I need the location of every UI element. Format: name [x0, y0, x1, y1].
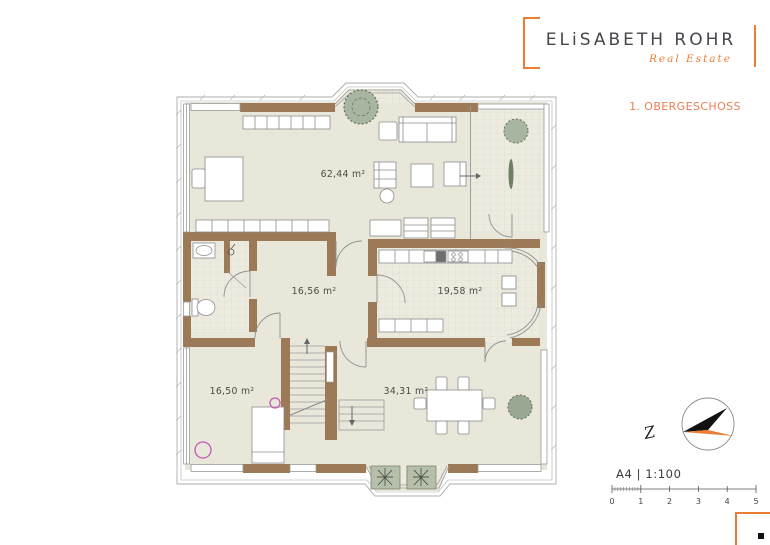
compass-north-label: Z	[642, 422, 657, 443]
plan-position-box	[735, 512, 770, 545]
brand-logo: ELiSABETH ROHR Real Estate	[523, 17, 756, 71]
tick-0: 0	[609, 497, 614, 506]
format-scale-label: A4 | 1:100	[616, 467, 682, 481]
tick-3: 3	[696, 497, 701, 506]
brand-name: ELiSABETH ROHR	[545, 30, 737, 50]
page: ELiSABETH ROHR Real Estate 1. OBERGESCHO…	[0, 0, 770, 545]
scale-tick-labels: 0 1 2 3 4 5	[609, 497, 758, 506]
floor-base	[185, 89, 548, 491]
compass-needle-black	[683, 408, 727, 432]
label-hall: 16,56 m²	[292, 286, 337, 297]
label-dining: 34,31 m²	[384, 386, 429, 397]
label-kitchen: 19,58 m²	[438, 286, 483, 297]
position-marker	[758, 533, 764, 539]
label-bedroom: 16,50 m²	[210, 386, 255, 397]
floor-title: 1. OBERGESCHOSS	[599, 100, 770, 113]
compass-rose	[681, 397, 735, 451]
label-living: 62,44 m²	[321, 169, 366, 180]
scale-bar: 0 1 2 3 4 5	[604, 481, 766, 509]
tick-4: 4	[725, 497, 730, 506]
logo-bar-shape	[754, 25, 757, 67]
floor-plan: 62,44 m² 16,56 m² 19,58 m² 16,50 m² 34,3…	[160, 75, 570, 500]
logo-bracket-shape	[523, 17, 540, 69]
tick-2: 2	[667, 497, 672, 506]
brand-tagline: Real Estate	[649, 53, 732, 65]
tick-5: 5	[753, 497, 758, 506]
tick-1: 1	[638, 497, 643, 506]
